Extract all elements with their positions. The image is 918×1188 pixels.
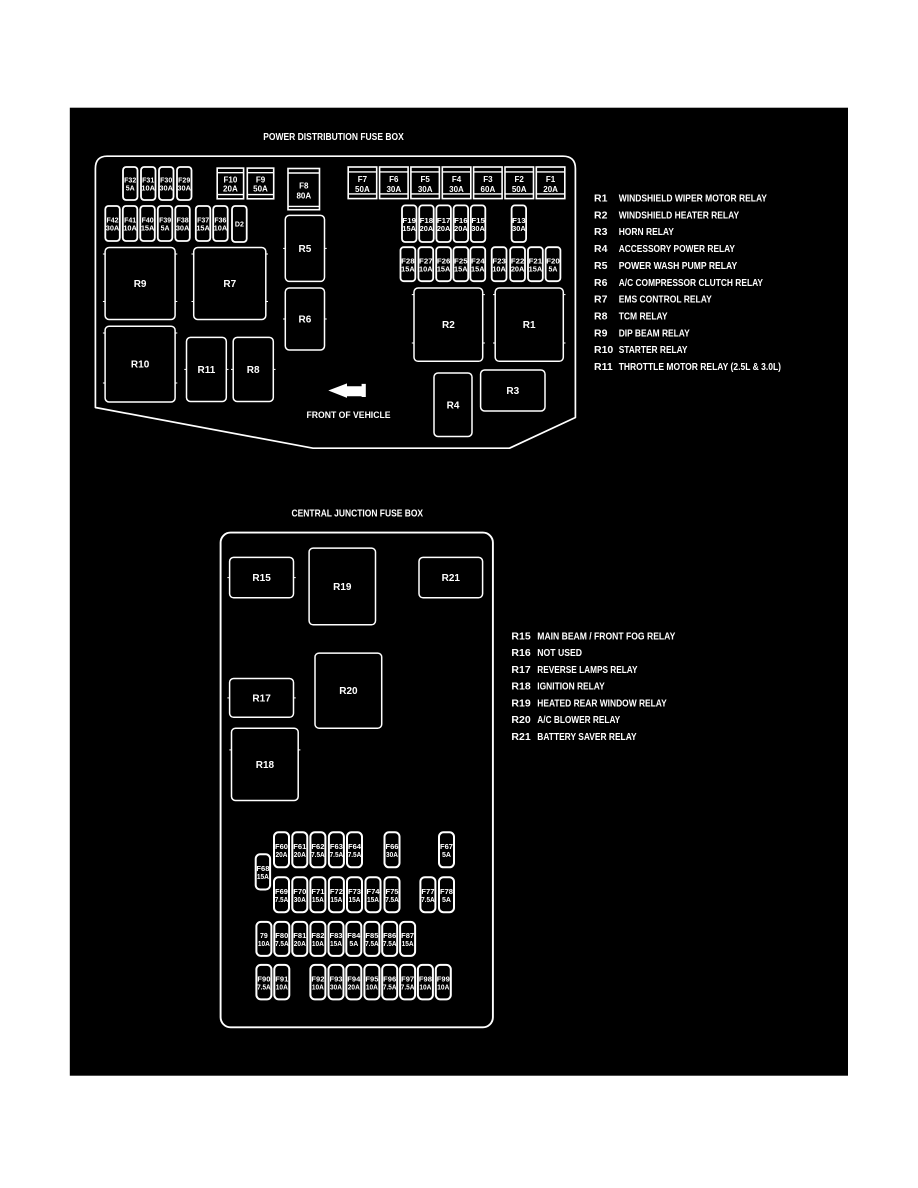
svg-text:10A: 10A <box>437 984 449 991</box>
svg-text:F26: F26 <box>437 258 451 265</box>
svg-text:30A: 30A <box>512 226 526 233</box>
svg-text:R8: R8 <box>247 365 260 376</box>
svg-text:F81: F81 <box>293 933 306 940</box>
svg-text:10A: 10A <box>141 186 155 193</box>
svg-text:F28: F28 <box>401 258 415 265</box>
svg-text:HEATED REAR WINDOW RELAY: HEATED REAR WINDOW RELAY <box>537 697 666 709</box>
svg-text:R21: R21 <box>442 573 461 584</box>
svg-text:F74: F74 <box>367 889 380 896</box>
svg-text:R5: R5 <box>594 260 608 272</box>
svg-text:30A: 30A <box>294 897 306 904</box>
svg-text:F72: F72 <box>330 889 343 896</box>
svg-text:F96: F96 <box>383 976 396 983</box>
svg-text:POWER DISTRIBUTION FUSE BOX: POWER DISTRIBUTION FUSE BOX <box>263 131 404 143</box>
svg-text:F21: F21 <box>529 258 543 265</box>
svg-text:F98: F98 <box>419 976 432 983</box>
svg-text:10A: 10A <box>312 941 324 948</box>
svg-text:F68: F68 <box>256 866 269 873</box>
svg-text:F4: F4 <box>452 175 462 184</box>
svg-text:7.5A: 7.5A <box>421 897 435 904</box>
svg-text:R17: R17 <box>511 664 530 676</box>
svg-text:15A: 15A <box>330 897 342 904</box>
svg-text:7.5A: 7.5A <box>383 984 397 991</box>
svg-text:F67: F67 <box>440 844 453 851</box>
svg-text:R4: R4 <box>447 400 460 411</box>
svg-text:15A: 15A <box>402 226 416 233</box>
svg-text:F16: F16 <box>454 218 468 225</box>
svg-text:ACCESSORY POWER RELAY: ACCESSORY POWER RELAY <box>619 243 735 255</box>
svg-text:NOT USED: NOT USED <box>537 647 582 659</box>
svg-text:15A: 15A <box>349 897 361 904</box>
svg-text:F9: F9 <box>256 175 266 184</box>
svg-text:REVERSE LAMPS RELAY: REVERSE LAMPS RELAY <box>537 664 637 676</box>
svg-text:F60: F60 <box>275 844 288 851</box>
svg-text:F29: F29 <box>178 178 190 185</box>
svg-text:F91: F91 <box>275 976 288 983</box>
svg-text:R10: R10 <box>594 344 613 356</box>
svg-text:R11: R11 <box>594 361 613 373</box>
svg-text:20A: 20A <box>294 941 306 948</box>
svg-text:F36: F36 <box>214 218 226 225</box>
svg-text:R9: R9 <box>594 327 608 339</box>
svg-text:10A: 10A <box>419 984 431 991</box>
svg-text:F40: F40 <box>142 218 154 225</box>
svg-text:F13: F13 <box>512 218 526 225</box>
svg-text:D2: D2 <box>235 222 244 229</box>
svg-text:R8: R8 <box>594 311 608 323</box>
svg-text:10A: 10A <box>492 266 506 273</box>
svg-text:R3: R3 <box>594 226 608 238</box>
svg-text:HORN RELAY: HORN RELAY <box>619 226 674 238</box>
svg-text:5A: 5A <box>161 226 170 233</box>
svg-text:F5: F5 <box>421 175 431 184</box>
svg-text:R1: R1 <box>594 193 608 205</box>
svg-text:R15: R15 <box>252 573 271 584</box>
svg-text:20A: 20A <box>223 185 238 194</box>
svg-text:15A: 15A <box>196 226 210 233</box>
svg-text:7.5A: 7.5A <box>348 852 362 859</box>
svg-text:20A: 20A <box>420 226 434 233</box>
svg-text:F37: F37 <box>197 218 209 225</box>
svg-text:10A: 10A <box>419 266 433 273</box>
svg-text:R1: R1 <box>523 320 536 331</box>
svg-text:F19: F19 <box>402 218 416 225</box>
svg-text:R19: R19 <box>511 697 530 709</box>
svg-text:F42: F42 <box>106 218 118 225</box>
svg-text:20A: 20A <box>437 226 451 233</box>
svg-text:R6: R6 <box>594 277 608 289</box>
svg-text:F94: F94 <box>347 976 360 983</box>
svg-text:F99: F99 <box>437 976 450 983</box>
svg-text:7.5A: 7.5A <box>330 852 344 859</box>
svg-text:15A: 15A <box>529 266 543 273</box>
svg-text:F31: F31 <box>142 178 154 185</box>
svg-text:F22: F22 <box>511 258 525 265</box>
svg-text:15A: 15A <box>402 941 414 948</box>
svg-text:F6: F6 <box>389 175 399 184</box>
svg-text:F39: F39 <box>159 218 171 225</box>
svg-text:30A: 30A <box>159 186 173 193</box>
svg-text:F82: F82 <box>311 933 324 940</box>
svg-text:7.5A: 7.5A <box>257 984 271 991</box>
svg-text:15A: 15A <box>141 226 155 233</box>
svg-text:A/C BLOWER RELAY: A/C BLOWER RELAY <box>537 714 620 726</box>
svg-text:EMS CONTROL RELAY: EMS CONTROL RELAY <box>619 294 712 306</box>
svg-text:15A: 15A <box>454 266 468 273</box>
svg-text:80A: 80A <box>296 191 311 200</box>
svg-text:R18: R18 <box>511 681 530 693</box>
svg-text:F20: F20 <box>546 258 560 265</box>
svg-text:30A: 30A <box>471 226 485 233</box>
svg-text:F61: F61 <box>293 844 306 851</box>
svg-text:F95: F95 <box>365 976 378 983</box>
svg-text:R4: R4 <box>594 243 608 255</box>
svg-text:7.5A: 7.5A <box>275 897 289 904</box>
svg-text:5A: 5A <box>442 897 451 904</box>
svg-text:20A: 20A <box>294 852 306 859</box>
svg-text:20A: 20A <box>454 226 468 233</box>
svg-text:TCM RELAY: TCM RELAY <box>619 311 668 323</box>
svg-text:F3: F3 <box>483 175 493 184</box>
svg-text:20A: 20A <box>276 852 288 859</box>
svg-text:A/C COMPRESSOR CLUTCH RELAY: A/C COMPRESSOR CLUTCH RELAY <box>619 277 763 289</box>
svg-text:R11: R11 <box>198 365 216 376</box>
svg-text:10A: 10A <box>366 984 378 991</box>
svg-text:R5: R5 <box>299 244 312 255</box>
svg-text:F10: F10 <box>224 175 238 184</box>
svg-text:20A: 20A <box>543 185 558 194</box>
svg-text:IGNITION RELAY: IGNITION RELAY <box>537 681 604 693</box>
svg-text:F70: F70 <box>293 889 306 896</box>
svg-text:FRONT OF VEHICLE: FRONT OF VEHICLE <box>307 410 391 421</box>
svg-text:R3: R3 <box>506 386 519 397</box>
svg-text:R18: R18 <box>256 760 275 771</box>
svg-text:F32: F32 <box>124 178 136 185</box>
svg-text:F30: F30 <box>160 178 172 185</box>
svg-text:F62: F62 <box>311 844 324 851</box>
svg-text:79: 79 <box>260 933 268 940</box>
svg-text:F1: F1 <box>546 175 556 184</box>
svg-text:F7: F7 <box>358 175 368 184</box>
svg-text:R7: R7 <box>223 279 236 290</box>
svg-text:30A: 30A <box>330 984 342 991</box>
svg-text:F71: F71 <box>311 889 324 896</box>
svg-text:10A: 10A <box>214 226 228 233</box>
svg-text:50A: 50A <box>253 185 268 194</box>
svg-text:7.5A: 7.5A <box>275 941 289 948</box>
svg-text:F84: F84 <box>347 933 360 940</box>
svg-text:7.5A: 7.5A <box>365 941 379 948</box>
svg-text:10A: 10A <box>123 226 137 233</box>
svg-text:10A: 10A <box>312 984 324 991</box>
svg-text:F41: F41 <box>124 218 136 225</box>
svg-text:POWER WASH PUMP RELAY: POWER WASH PUMP RELAY <box>619 260 738 272</box>
svg-text:WINDSHIELD HEATER RELAY: WINDSHIELD HEATER RELAY <box>619 209 739 221</box>
svg-text:F69: F69 <box>275 889 288 896</box>
svg-text:F92: F92 <box>311 976 324 983</box>
svg-text:F63: F63 <box>330 844 343 851</box>
svg-text:R19: R19 <box>333 582 352 593</box>
svg-text:F66: F66 <box>386 844 399 851</box>
svg-text:F64: F64 <box>348 844 361 851</box>
svg-text:STARTER RELAY: STARTER RELAY <box>619 344 688 356</box>
svg-text:R7: R7 <box>594 294 608 306</box>
svg-text:20A: 20A <box>511 266 525 273</box>
svg-text:7.5A: 7.5A <box>383 941 397 948</box>
svg-text:F80: F80 <box>275 933 288 940</box>
svg-text:50A: 50A <box>512 185 527 194</box>
svg-text:F85: F85 <box>365 933 378 940</box>
svg-text:F97: F97 <box>401 976 414 983</box>
svg-text:60A: 60A <box>481 185 496 194</box>
svg-text:F87: F87 <box>401 933 414 940</box>
svg-text:R15: R15 <box>511 630 530 642</box>
svg-text:15A: 15A <box>401 266 415 273</box>
svg-text:WINDSHIELD WIPER MOTOR RELAY: WINDSHIELD WIPER MOTOR RELAY <box>619 193 767 205</box>
svg-text:F2: F2 <box>515 175 525 184</box>
svg-text:15A: 15A <box>437 266 451 273</box>
svg-text:30A: 30A <box>418 185 433 194</box>
svg-text:15A: 15A <box>257 874 269 881</box>
svg-text:50A: 50A <box>355 185 370 194</box>
svg-text:F77: F77 <box>421 889 434 896</box>
svg-text:30A: 30A <box>106 226 120 233</box>
svg-text:10A: 10A <box>258 941 270 948</box>
svg-text:F27: F27 <box>419 258 433 265</box>
svg-text:R16: R16 <box>511 647 530 659</box>
svg-text:5A: 5A <box>126 186 135 193</box>
svg-text:F83: F83 <box>330 933 343 940</box>
svg-text:F90: F90 <box>257 976 270 983</box>
svg-text:F17: F17 <box>437 218 451 225</box>
svg-text:R17: R17 <box>252 694 271 705</box>
svg-text:30A: 30A <box>177 186 191 193</box>
svg-text:R20: R20 <box>511 714 530 726</box>
svg-text:THROTTLE MOTOR RELAY (2.5L & 3: THROTTLE MOTOR RELAY (2.5L & 3.0L) <box>619 361 781 373</box>
svg-text:R10: R10 <box>131 360 150 371</box>
svg-text:F8: F8 <box>299 182 309 191</box>
svg-text:5A: 5A <box>349 941 358 948</box>
svg-text:R21: R21 <box>511 731 530 743</box>
svg-text:F75: F75 <box>386 889 399 896</box>
svg-text:20A: 20A <box>348 984 360 991</box>
svg-text:R2: R2 <box>594 209 608 221</box>
svg-text:DIP BEAM RELAY: DIP BEAM RELAY <box>619 327 690 339</box>
svg-text:R20: R20 <box>339 686 358 697</box>
svg-text:F78: F78 <box>440 889 453 896</box>
svg-text:F38: F38 <box>177 218 189 225</box>
svg-text:F73: F73 <box>348 889 361 896</box>
svg-text:15A: 15A <box>312 897 324 904</box>
svg-text:15A: 15A <box>471 266 485 273</box>
svg-text:5A: 5A <box>549 266 558 273</box>
svg-text:MAIN BEAM / FRONT FOG RELAY: MAIN BEAM / FRONT FOG RELAY <box>537 630 675 642</box>
svg-text:30A: 30A <box>176 226 190 233</box>
svg-text:F86: F86 <box>383 933 396 940</box>
svg-text:15A: 15A <box>367 897 379 904</box>
svg-text:7.5A: 7.5A <box>401 984 415 991</box>
svg-text:7.5A: 7.5A <box>311 852 325 859</box>
svg-text:F15: F15 <box>471 218 485 225</box>
svg-text:F24: F24 <box>471 258 485 265</box>
svg-text:F18: F18 <box>420 218 434 225</box>
svg-text:30A: 30A <box>449 185 464 194</box>
svg-text:7.5A: 7.5A <box>385 897 399 904</box>
svg-text:30A: 30A <box>386 185 401 194</box>
svg-text:F93: F93 <box>330 976 343 983</box>
svg-text:15A: 15A <box>330 941 342 948</box>
svg-text:5A: 5A <box>442 852 451 859</box>
svg-text:F25: F25 <box>454 258 468 265</box>
svg-text:R6: R6 <box>299 315 312 326</box>
svg-text:CENTRAL JUNCTION FUSE BOX: CENTRAL JUNCTION FUSE BOX <box>292 508 424 520</box>
svg-text:BATTERY SAVER RELAY: BATTERY SAVER RELAY <box>537 731 636 743</box>
svg-text:10A: 10A <box>276 984 288 991</box>
svg-text:F23: F23 <box>492 258 506 265</box>
svg-text:30A: 30A <box>386 852 398 859</box>
svg-text:R2: R2 <box>442 320 455 331</box>
svg-text:R9: R9 <box>134 279 147 290</box>
